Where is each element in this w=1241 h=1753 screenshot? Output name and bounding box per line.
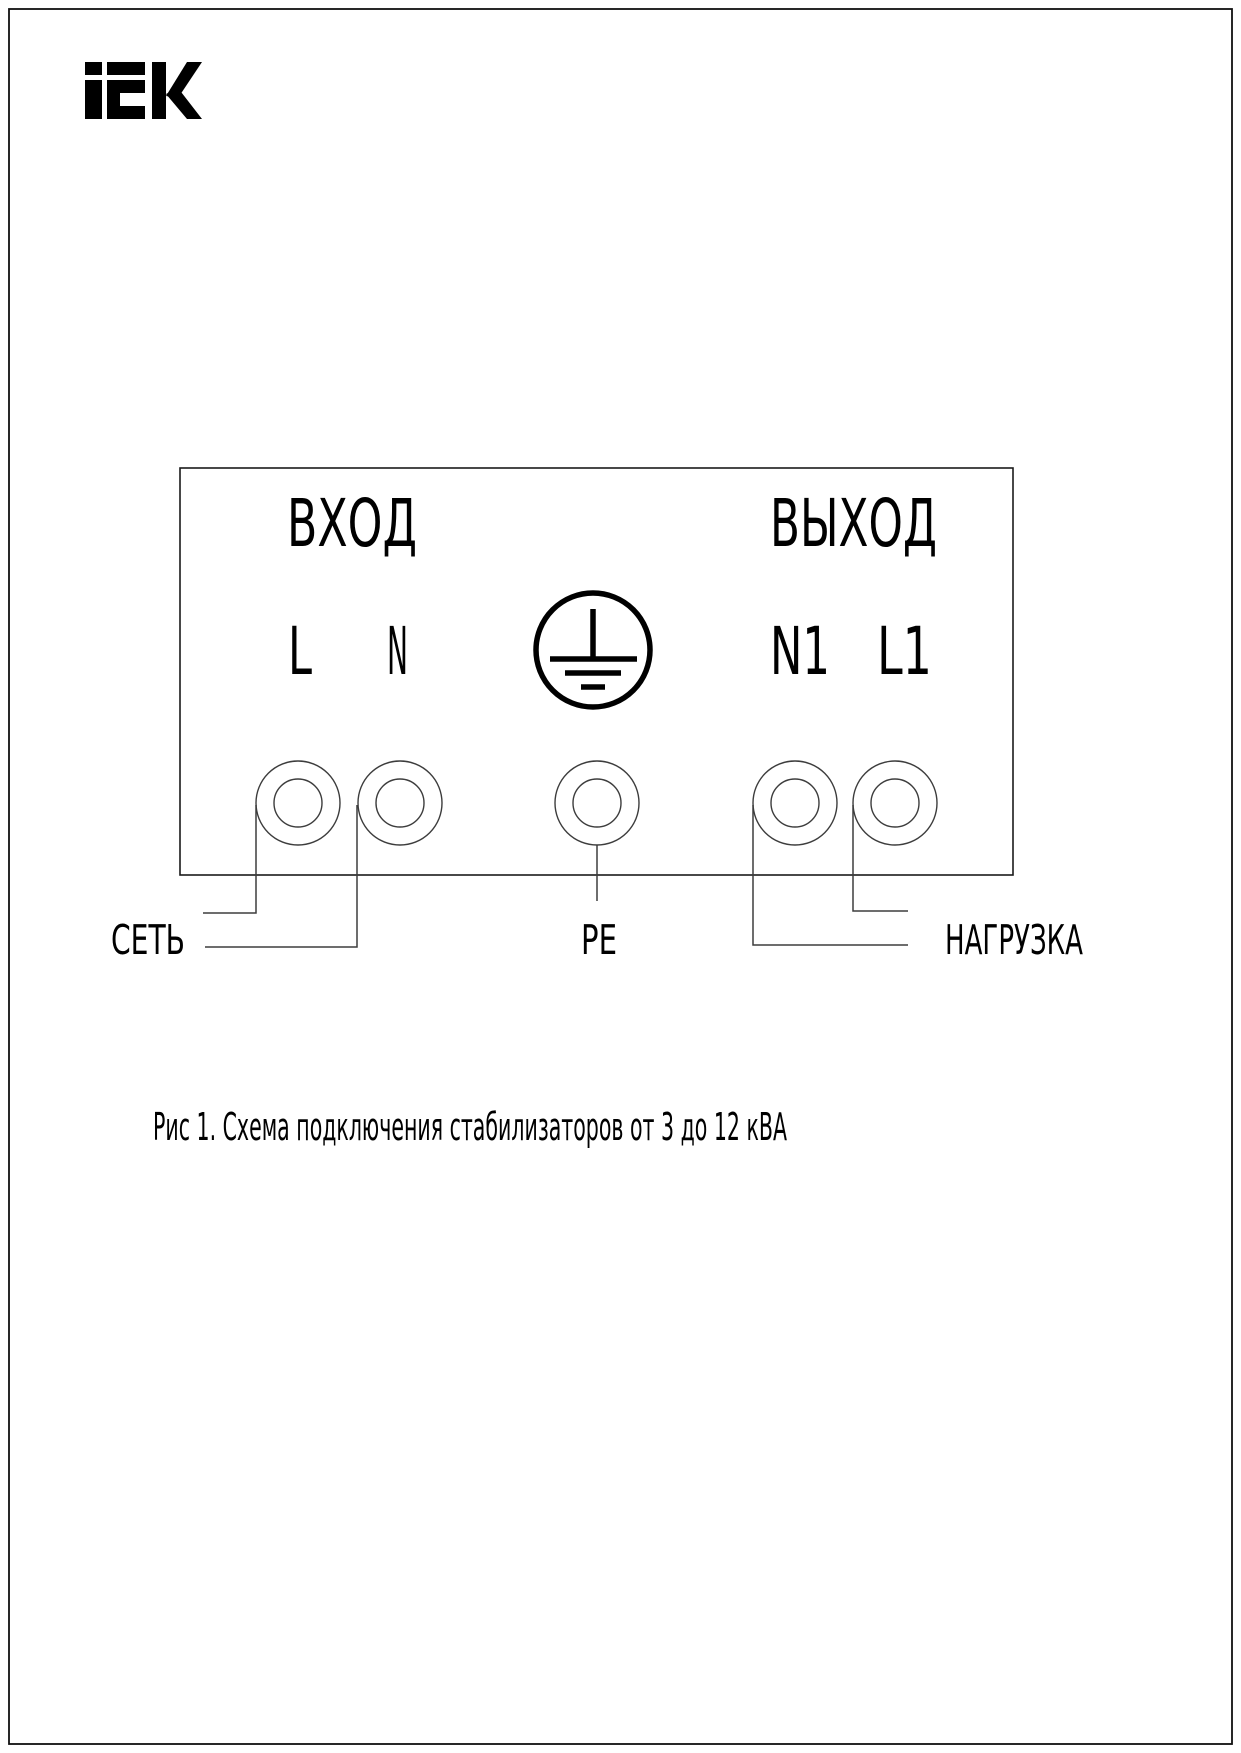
- terminal-l1-outer: [853, 761, 937, 845]
- figure-caption: Рис 1. Схема подключения стабилизаторов …: [153, 1105, 787, 1149]
- output-label: ВЫХОД: [770, 485, 937, 562]
- terminal-n1-outer: [753, 761, 837, 845]
- terminal-l-outer: [256, 761, 340, 845]
- terminal-l1-inner: [871, 779, 919, 827]
- iek-logo-k-lower-arm: [166, 88, 202, 119]
- terminal-l-label: L: [288, 613, 312, 690]
- input-label: ВХОД: [287, 485, 417, 562]
- protective-earth-icon: [536, 593, 650, 707]
- terminal-n: [358, 761, 442, 845]
- terminal-l-inner: [274, 779, 322, 827]
- terminal-n1-inner: [771, 779, 819, 827]
- iek-logo-i-dot: [85, 62, 102, 75]
- terminal-l1-label: L1: [877, 613, 932, 690]
- terminal-n-inner: [376, 779, 424, 827]
- pe-label: PE: [581, 916, 617, 964]
- terminal-pe-outer: [555, 761, 639, 845]
- wire-l1-to-load: [853, 805, 908, 911]
- terminal-l: [256, 761, 340, 845]
- iek-logo-i-body: [85, 80, 102, 119]
- terminal-n1-label: N1: [770, 613, 830, 690]
- page-border: [9, 9, 1232, 1744]
- terminal-n-outer: [358, 761, 442, 845]
- terminal-pe: [555, 761, 639, 845]
- iek-logo-e-bottom: [107, 106, 145, 119]
- wire-n-to-mains: [205, 805, 357, 947]
- terminal-l1: [853, 761, 937, 845]
- iek-logo-e-mid: [107, 80, 145, 93]
- wire-l-to-mains: [203, 805, 256, 913]
- iek-logo: iEK: [85, 62, 202, 119]
- iek-logo-k-stem: [152, 62, 166, 119]
- terminal-n-label: N: [387, 613, 408, 690]
- connection-diagram: ВХОД ВЫХОД L N N1 L1: [111, 468, 1083, 964]
- terminal-n1: [753, 761, 837, 845]
- iek-logo-e-top: [107, 62, 145, 75]
- mains-label: СЕТЬ: [111, 916, 185, 964]
- manual-page: iEK ВХОД ВЫХОД L N N1 L1: [0, 0, 1241, 1753]
- load-label: НАГРУЗКА: [945, 916, 1083, 964]
- terminal-pe-inner: [573, 779, 621, 827]
